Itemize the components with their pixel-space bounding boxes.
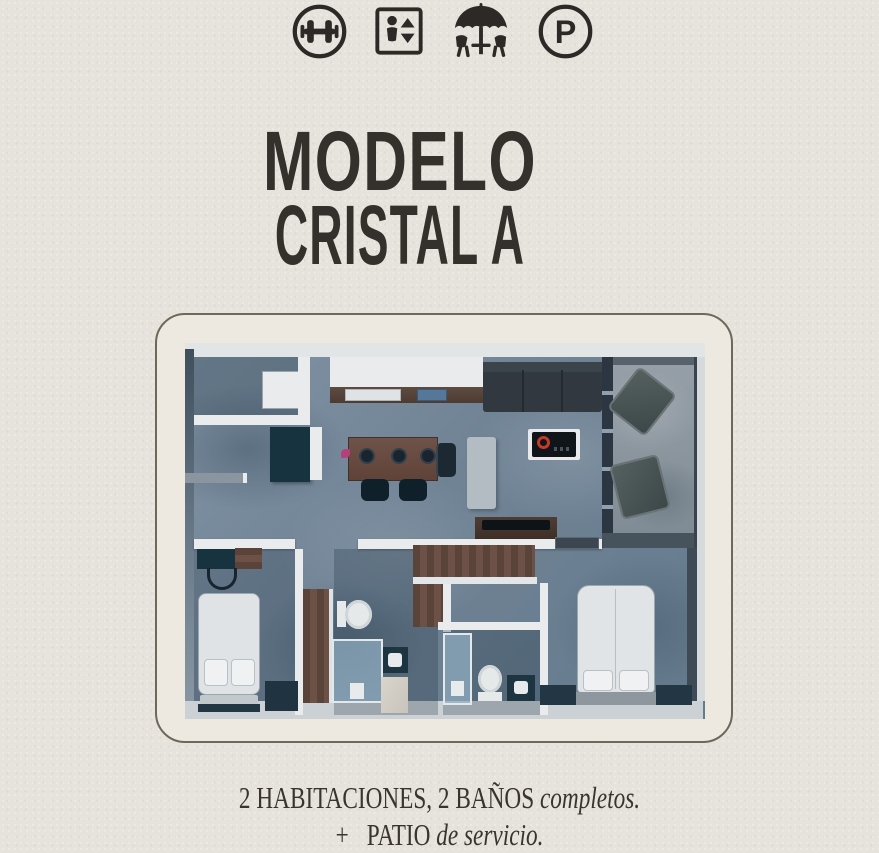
bedroom1-bed: [198, 593, 262, 712]
sink2-basin: [514, 681, 528, 694]
features-line-1: 2 HABITACIONES, 2 BAÑOS completos.: [110, 779, 769, 816]
entry-door: [555, 537, 599, 549]
features-line2-plus: +: [336, 817, 349, 852]
amenities-row: P: [0, 2, 879, 60]
cooktop-island: [528, 429, 580, 460]
kitchen-cart: [467, 437, 496, 509]
title-line-2: CRISTAL A: [180, 198, 620, 272]
bathroom2-shower: [443, 633, 472, 705]
parking-icon: P: [537, 3, 594, 60]
half-wall: [185, 473, 247, 483]
tv-console: [475, 517, 557, 539]
kitchen-upper-counter: [330, 357, 483, 387]
bed1-base: [198, 704, 260, 712]
bathroom2-toilet-tank: [478, 692, 502, 701]
bed2-pillow-1: [583, 670, 613, 691]
bathroom2-toilet: [478, 665, 502, 693]
bedroom1-storage-block: [265, 681, 298, 711]
bedroom2-right-edge: [697, 548, 705, 701]
utility-wall-horizontal: [194, 415, 310, 425]
sofa: [483, 362, 602, 412]
top-wall-slab: [185, 343, 705, 357]
floor-plan: [185, 343, 705, 719]
hall-closet-side: [413, 545, 443, 627]
features-text: 2 HABITACIONES, 2 BAÑOS completos. +PATI…: [0, 779, 879, 853]
left-outer-wall: [185, 349, 194, 715]
flower-vase: [341, 449, 350, 458]
features-line2-regular: PATIO: [367, 817, 437, 852]
features-line1-italic: completos.: [540, 780, 640, 815]
svg-text:P: P: [555, 13, 577, 49]
dining-chair-3: [436, 443, 456, 477]
bathroom1-shower: [332, 639, 383, 703]
cooktop-knobs: [554, 447, 572, 451]
desk: [197, 549, 235, 569]
balcony-glass-wall: [602, 357, 613, 535]
sink1-basin: [388, 653, 402, 667]
sofa-seam-2: [561, 370, 563, 412]
features-line2-italic: de servicio.: [436, 817, 543, 852]
dish-rack: [417, 389, 447, 401]
features-line-2: +PATIO de servicio.: [110, 816, 769, 853]
hall-closet-shelf: [413, 577, 537, 584]
tv-screen: [482, 520, 550, 530]
elevator-icon: [373, 5, 425, 57]
bedroom2-nightstand-left: [540, 685, 576, 705]
patio-umbrella-icon: [450, 2, 512, 60]
dumbbell-icon: [291, 3, 348, 60]
bed2-seam: [615, 589, 616, 689]
pantry-cabinet: [270, 427, 310, 482]
bed1-pillow-1: [204, 659, 228, 686]
utility-wall-vertical: [298, 357, 310, 423]
bedroom2-bed: [573, 585, 659, 705]
balcony-bottom-wall: [602, 533, 703, 548]
pantry-side-wall: [310, 427, 322, 480]
washer: [262, 371, 299, 409]
cooktop-burner: [537, 436, 550, 449]
bathroom1-toilet: [345, 600, 372, 629]
balcony-top-wall: [613, 357, 697, 365]
sofa-seam-1: [522, 370, 524, 412]
kitchen-sink: [345, 389, 401, 401]
place-setting-1: [359, 448, 375, 464]
bedroom2-right-wall: [687, 548, 697, 701]
dining-chair-2: [399, 479, 427, 501]
shower2-mat: [451, 681, 464, 696]
bed2-bench: [573, 692, 659, 705]
bed1-pillow-2: [231, 659, 255, 686]
features-line1-regular: 2 HABITACIONES, 2 BAÑOS: [239, 780, 540, 815]
balcony-right-edge: [697, 357, 705, 548]
bed2-pillow-2: [619, 670, 649, 691]
bathroom1-sink: [383, 647, 408, 673]
bathroom2-top-wall: [438, 622, 545, 630]
bedroom1-wardrobe: [303, 589, 333, 703]
bedroom2-nightstand-right: [656, 685, 692, 705]
shower1-mat: [350, 683, 364, 699]
page-title: MODELO CRISTAL A: [0, 124, 800, 272]
desk-shelf: [235, 548, 262, 569]
bathroom2-sink: [507, 675, 535, 701]
floor-plan-card: [155, 313, 733, 743]
sofa-back: [483, 362, 602, 372]
marble-wall-block: [381, 677, 408, 713]
poster: { "poster": { "amenity_icons": [ {"id": …: [0, 0, 879, 848]
dining-chair-1: [361, 479, 389, 501]
place-setting-3: [420, 448, 436, 464]
place-setting-2: [391, 448, 407, 464]
title-line-1: MODELO: [112, 124, 688, 198]
